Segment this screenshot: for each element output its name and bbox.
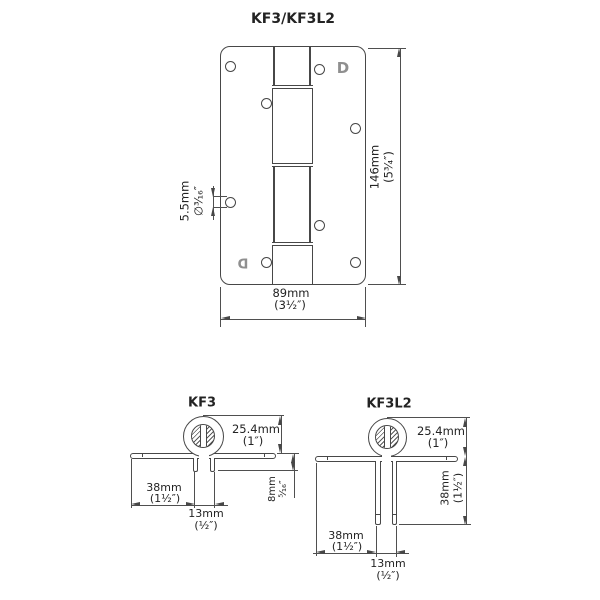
channel-line (312, 246, 313, 284)
kf3-lip-dimension-label: 8mm ⁵⁄₁₆″ (267, 467, 289, 511)
hinge-leg (210, 458, 215, 472)
extension-line (220, 287, 221, 327)
segment-joint-line (272, 163, 313, 164)
segment-joint-line (272, 166, 313, 167)
hinge-pin (191, 424, 215, 448)
kf3l2-leg-dimension-label: 38mm (1¹⁄₂″) (440, 459, 465, 517)
extension-line (399, 524, 471, 525)
segment-joint-line (272, 85, 313, 86)
channel-line (309, 167, 310, 242)
leaf-slit-gap (199, 449, 209, 471)
kf3l2-slot-dimension-label-inch: (¹⁄₂″) (376, 570, 399, 582)
hole-dimension-label: 5.5mm ∅³⁄₁₆″ (179, 171, 206, 231)
kf3-title: KF3 (188, 396, 216, 411)
flange-hem-tick (327, 457, 328, 461)
channel-line (272, 89, 273, 163)
extension-line (203, 415, 284, 416)
hinge-leg (193, 458, 198, 472)
segment-joint-line (272, 245, 313, 246)
arrowhead-icon (131, 502, 140, 506)
arrowhead-icon (463, 447, 467, 456)
hinge-leg (375, 461, 381, 525)
arrowhead-icon (396, 550, 405, 554)
channel-line (273, 47, 274, 85)
channel-line (273, 167, 274, 242)
arrowhead-icon (221, 316, 230, 320)
kf3l2-flange-dimension-label-inch: (1¹⁄₂″) (332, 541, 362, 553)
mounting-hole (261, 257, 272, 268)
arrowhead-icon (357, 316, 366, 320)
dimension-line (131, 505, 228, 506)
flange-hem-tick (446, 457, 447, 461)
hinge-leg (392, 461, 398, 525)
flange-hem-tick (264, 454, 265, 458)
arrowhead-icon (278, 444, 282, 453)
segment-joint-line (272, 242, 313, 243)
mounting-hole (314, 64, 325, 75)
arrowhead-icon (211, 188, 215, 197)
kf3l2-title: KF3L2 (366, 397, 411, 412)
brand-logo-icon-rotated: D (237, 255, 248, 270)
segment-joint-line (272, 88, 313, 89)
dimension-line (400, 48, 401, 285)
extension-line (213, 207, 227, 208)
kf3-flange-dimension-label-inch: (1¹⁄₂″) (150, 493, 180, 505)
dimension-line (220, 319, 366, 320)
extension-line (131, 459, 132, 508)
arrowhead-icon (397, 276, 401, 285)
channel-line (309, 47, 310, 85)
mounting-hole (350, 257, 361, 268)
hinge-pin (375, 425, 399, 449)
kf3l2-pin-dimension-label-inch: (1″) (428, 437, 449, 449)
arrowhead-icon (316, 550, 325, 554)
extension-line (365, 287, 366, 327)
arrowhead-icon (397, 48, 401, 57)
arrowhead-icon (215, 502, 224, 506)
width-dimension-label-inch: (3¹⁄₂″) (274, 299, 306, 311)
extension-line (213, 196, 227, 197)
leg-foot-tick (392, 514, 396, 515)
arrowhead-icon (367, 550, 376, 554)
dimension-line (466, 456, 467, 525)
pin-slot (384, 425, 391, 449)
channel-line (272, 246, 273, 284)
flange-hem-tick (142, 454, 143, 458)
pin-slot (200, 424, 207, 448)
kf3-pin-dimension-label-inch: (1″) (243, 435, 264, 447)
extension-line (387, 417, 470, 418)
drawing-title: KF3/KF3L2 (251, 11, 335, 27)
mounting-hole (225, 61, 236, 72)
mounting-hole (261, 98, 272, 109)
mounting-hole (350, 123, 361, 134)
mounting-hole-dimensioned (225, 197, 236, 208)
leaf-slit-gap (382, 449, 391, 465)
technical-drawing-canvas: KF3/KF3L2 D D (0, 0, 600, 600)
channel-line (312, 89, 313, 163)
leg-foot-tick (376, 514, 380, 515)
arrowhead-icon (291, 462, 295, 471)
arrowhead-icon (186, 502, 195, 506)
height-dimension-label: 146mm (5³⁄₄″) (369, 132, 396, 202)
arrowhead-icon (211, 207, 215, 216)
extension-line (277, 453, 299, 454)
kf3-slot-dimension-label-inch: (¹⁄₂″) (194, 520, 217, 532)
extension-line (316, 463, 317, 556)
mounting-hole (314, 220, 325, 231)
brand-logo-icon: D (337, 59, 349, 77)
